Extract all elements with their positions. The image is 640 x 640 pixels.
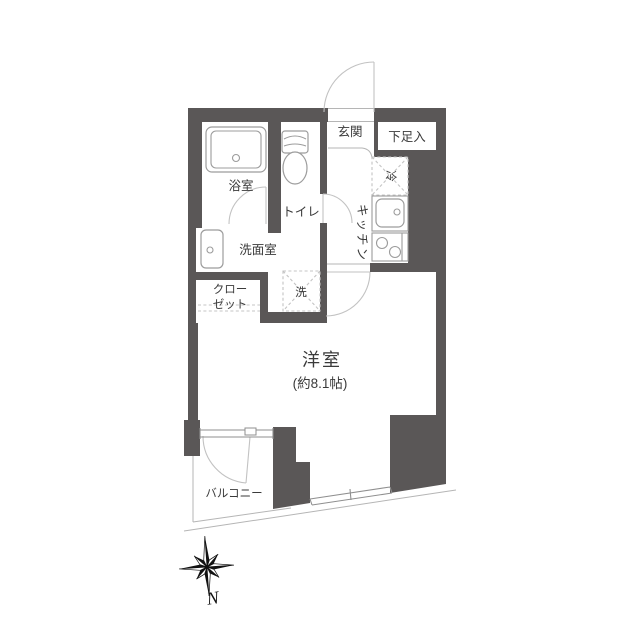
compass-star-icon: [179, 536, 234, 596]
bathtub: [206, 127, 266, 172]
wall-segment: [184, 420, 200, 456]
wall-segment: [408, 157, 446, 263]
refrigerator-label: 冷: [384, 170, 397, 182]
balcony-label: バルコニー: [205, 487, 262, 500]
shoe-storage-label: 下足入: [388, 130, 426, 144]
main-room-size-label: (約8.1帖): [293, 376, 348, 391]
wall-segment: [268, 312, 324, 323]
closet-label-line2: ゼット: [213, 298, 248, 311]
wall-segment: [268, 122, 281, 233]
wall-block-left-of-window: [273, 427, 310, 509]
entrance-door-arc: [324, 62, 374, 112]
wall-segment: [188, 272, 268, 280]
closet-label-line1: クロー: [213, 283, 248, 296]
wall-segment: [370, 263, 446, 272]
compass: N: [179, 536, 234, 609]
kitchen-sink: [372, 196, 408, 231]
kitchen-label: キッチン: [355, 204, 369, 262]
entrance-step-line: [328, 148, 372, 158]
wall-segment: [188, 108, 328, 122]
toilet-label: トイレ: [282, 205, 320, 219]
stove: [372, 233, 408, 261]
floor-plan-drawing: 玄関 下足入 冷 キッチン 浴室 トイレ 洗面室 クロー ゼット 洗 洋室 (約…: [0, 0, 640, 640]
floor-plan-page: 玄関 下足入 冷 キッチン 浴室 トイレ 洗面室 クロー ゼット 洗 洋室 (約…: [0, 0, 640, 640]
wall-corner-block-right: [390, 415, 446, 493]
wall-segment: [188, 323, 198, 420]
wall-segment: [436, 272, 446, 418]
washroom-label: 洗面室: [239, 242, 277, 257]
main-window-slanted: [310, 487, 392, 505]
window-handle: [245, 428, 256, 435]
washer-label: 洗: [295, 286, 307, 299]
wall-segment: [320, 223, 327, 323]
compass-north-label: N: [204, 587, 221, 609]
balcony-window: [200, 428, 273, 439]
bathroom-label: 浴室: [228, 178, 253, 193]
balcony-door-arc: [203, 436, 250, 483]
wall-segment: [188, 122, 202, 228]
wall-segment: [320, 122, 327, 194]
toilet-door-arc: [323, 194, 352, 223]
entrance-label: 玄関: [337, 124, 362, 139]
washbasin: [201, 230, 223, 268]
main-room-label: 洋室: [302, 350, 342, 370]
kitchen-door-arc: [326, 272, 370, 316]
wall-segment: [260, 272, 268, 323]
toilet-fixture: [282, 131, 308, 184]
